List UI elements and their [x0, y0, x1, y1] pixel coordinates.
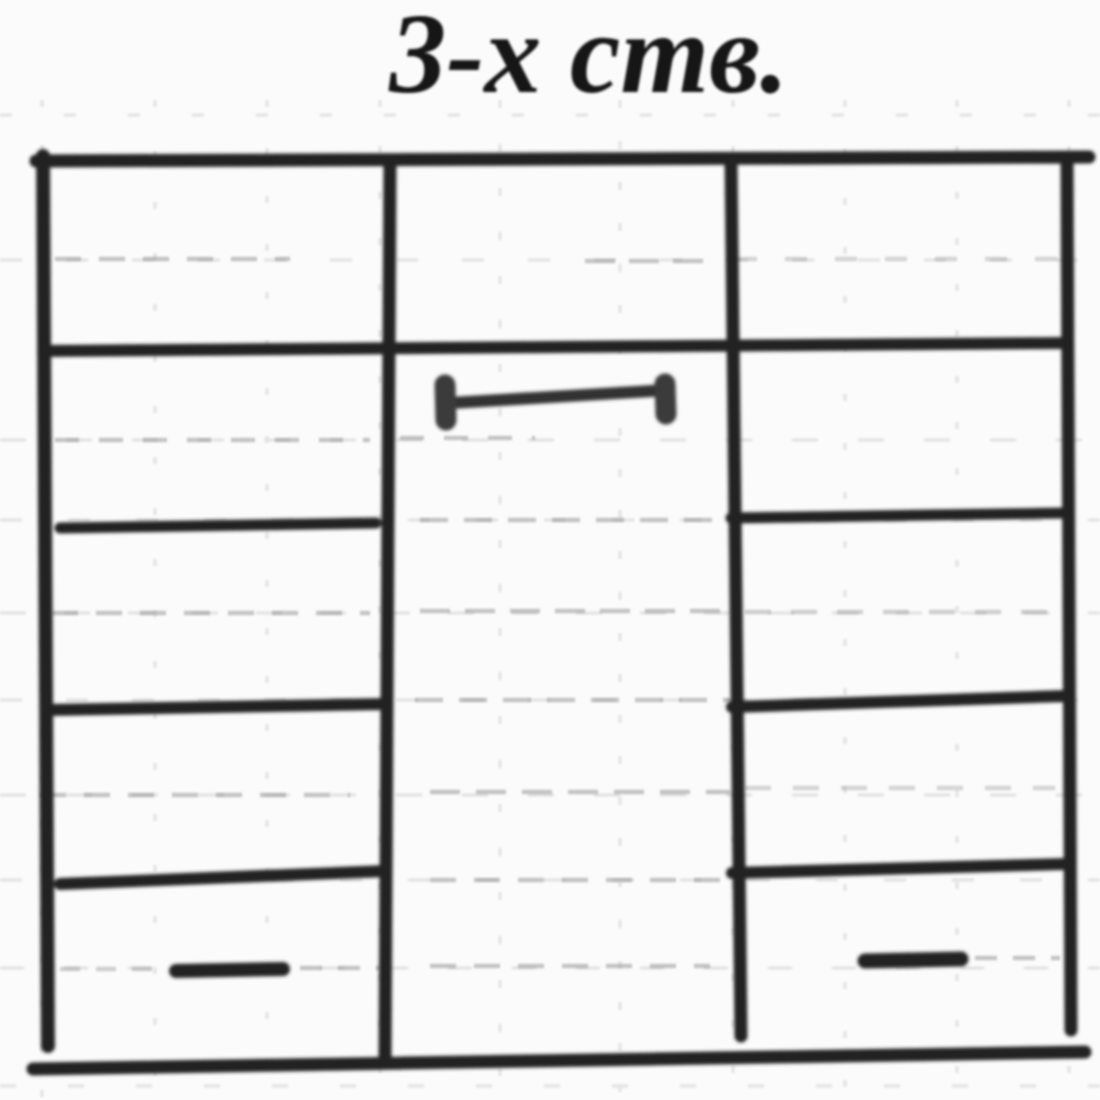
- svg-text:3-х ств.: 3-х ств.: [388, 0, 788, 117]
